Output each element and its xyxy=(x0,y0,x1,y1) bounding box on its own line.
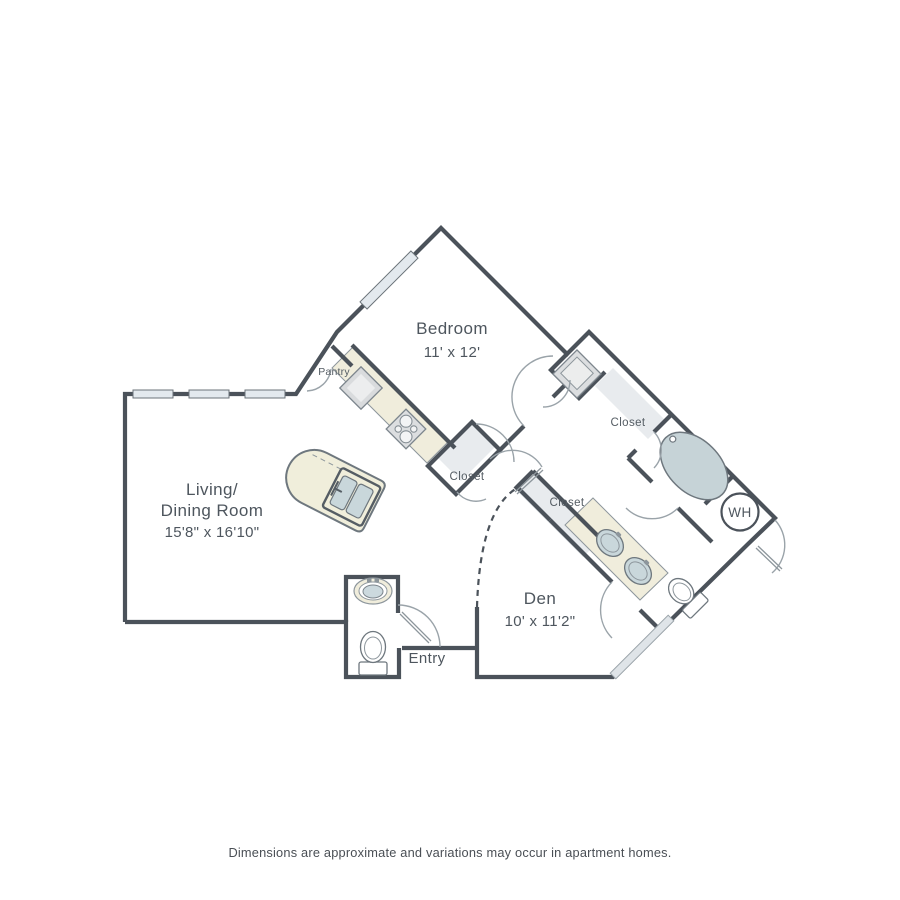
powder-sink-icon xyxy=(354,578,392,604)
pantry-label: Pantry xyxy=(318,366,350,378)
sliding-door-window-icon xyxy=(610,615,674,679)
window-icon xyxy=(360,251,418,309)
windows xyxy=(133,251,674,679)
closet-hall-label: Closet xyxy=(550,497,585,509)
window-icon xyxy=(189,390,229,398)
door-swing-arc xyxy=(457,492,486,501)
floorplan-page: WH Bedroom 11' x 12' Living/ Dining Room… xyxy=(0,0,900,900)
door-swing-arc xyxy=(601,582,612,638)
living-dining-label-line1: Living/ xyxy=(186,480,238,499)
powder-room-fixtures xyxy=(354,578,392,675)
water-heater: WH xyxy=(722,494,759,531)
door-swing-arc xyxy=(626,508,678,519)
bedroom-label: Bedroom xyxy=(416,319,488,338)
entry-label: Entry xyxy=(408,650,445,667)
kitchen-island xyxy=(277,440,387,533)
living-dining-label-line2: Dining Room xyxy=(161,501,264,520)
water-heater-label: WH xyxy=(728,505,752,520)
toilet-icon xyxy=(662,572,709,619)
living-dining-dims: 15'8" x 16'10" xyxy=(165,524,260,541)
disclaimer-text: Dimensions are approximate and variation… xyxy=(0,845,900,860)
door-swing-arc xyxy=(512,356,553,426)
den-label: Den xyxy=(524,589,556,608)
closet-kitchen-label: Closet xyxy=(450,471,485,483)
den-dims: 10' x 11'2" xyxy=(505,613,576,630)
bedroom-dims: 11' x 12' xyxy=(424,344,481,361)
window-icon xyxy=(245,390,285,398)
door-swing-arc xyxy=(398,605,440,647)
den-arch-opening-arc xyxy=(477,488,517,607)
closet-bedroom-label: Closet xyxy=(611,417,646,429)
toilet-icon xyxy=(359,632,387,676)
window-icon xyxy=(133,390,173,398)
floorplan-drawing: WH Bedroom 11' x 12' Living/ Dining Room… xyxy=(0,0,900,900)
